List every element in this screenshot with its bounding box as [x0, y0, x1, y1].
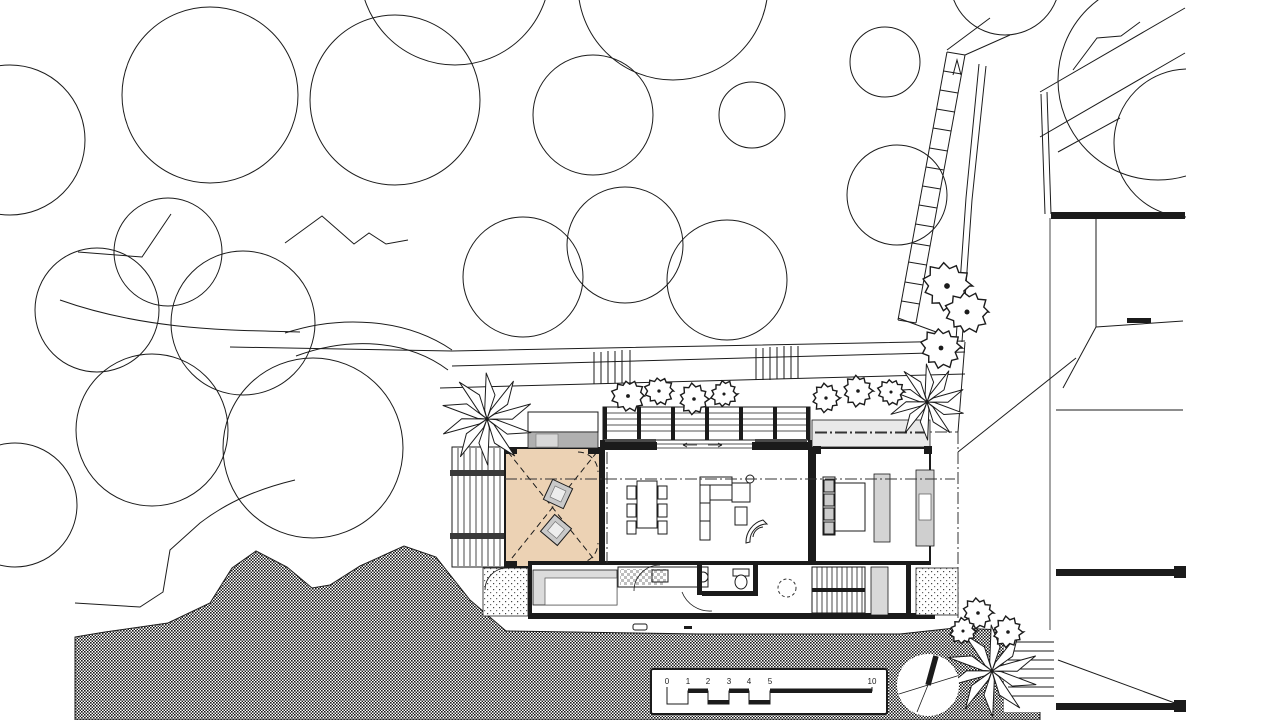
site-plan-canvas: 0 1 2 3 4 5 10	[0, 0, 1280, 720]
side-table	[735, 507, 747, 525]
shrub-center	[657, 389, 660, 392]
paving-pad-southwest	[483, 568, 528, 616]
dining-table	[627, 481, 667, 534]
scale-label-5: 5	[768, 677, 773, 686]
mudroom-bench	[533, 570, 617, 605]
paving-pad-southeast	[916, 568, 958, 615]
scale-label-10: 10	[868, 677, 877, 686]
shrub-center	[939, 346, 944, 351]
shrub-center	[692, 397, 696, 401]
deck-room	[505, 448, 600, 567]
shrub-center	[722, 392, 725, 395]
scale-label-0: 0	[665, 677, 670, 686]
stair-landing-edge	[812, 588, 865, 592]
shrub-center	[889, 390, 892, 393]
bed	[823, 477, 865, 535]
shrub-center	[626, 394, 630, 398]
wall-service-north	[528, 561, 930, 565]
wall-north-right	[752, 442, 808, 450]
scale-bar: 0 1 2 3 4 5 10	[651, 669, 887, 714]
scale-label-1: 1	[686, 677, 691, 686]
wall-north-left	[605, 442, 657, 450]
scale-label-3: 3	[727, 677, 732, 686]
shrub-center	[824, 396, 827, 399]
shrub-center	[856, 389, 860, 393]
wall-west	[600, 440, 605, 567]
neighbor-wall-mid	[1056, 569, 1178, 576]
living-block	[600, 440, 814, 567]
deck-beam	[450, 533, 507, 539]
north-arrow-icon	[897, 654, 959, 716]
wardrobe	[874, 474, 890, 542]
deck-beam	[450, 470, 507, 476]
neighbor-wall-south	[1056, 703, 1178, 710]
scale-label-2: 2	[706, 677, 711, 686]
site-plan-drawing: 0 1 2 3 4 5 10	[0, 0, 1280, 720]
shrub-center	[961, 629, 964, 632]
neighbor-wall-north	[1051, 212, 1185, 219]
shrub-center	[1006, 630, 1010, 634]
shrub-center	[976, 611, 980, 615]
shrub-center	[944, 283, 950, 289]
hall-strip	[871, 567, 888, 615]
scale-label-4: 4	[747, 677, 752, 686]
shrub-center	[964, 309, 969, 314]
east-wall-unit	[916, 470, 934, 546]
armchair	[732, 483, 750, 502]
wall-east	[808, 440, 814, 567]
